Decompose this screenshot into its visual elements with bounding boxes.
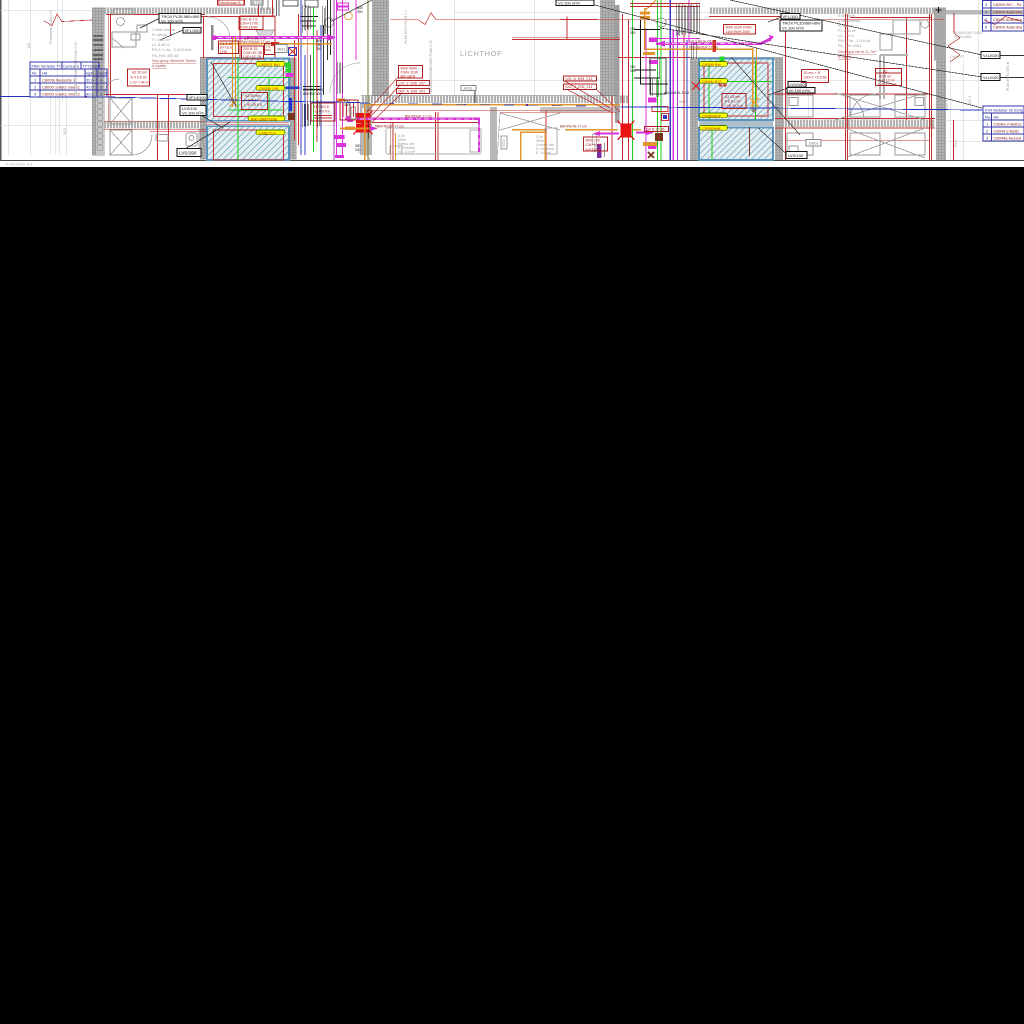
svg-text:LHK: LHK <box>220 50 228 54</box>
svg-text:A 4 9.5 m²: A 4 9.5 m² <box>131 76 148 80</box>
svg-text:C80Aa 2-Bettze: C80Aa 2-Bettze <box>994 122 1023 127</box>
svg-text:VLU/100: VLU/100 <box>983 53 999 58</box>
svg-text:UW75: UW75 <box>677 99 689 104</box>
svg-text:+L5 4-0-9 m: +L5 4-0-9 m <box>313 110 331 114</box>
svg-text:C80DB#WL: C80DB#WL <box>702 127 721 131</box>
svg-text:43.5: 43.5 <box>63 128 67 135</box>
svg-text:C80DB R#r: C80DB R#r <box>702 63 722 67</box>
svg-text:Vn 100 m³/h: Vn 100 m³/h <box>782 26 804 31</box>
svg-text:L+B 7B 9.5: L+B 7B 9.5 <box>244 103 262 107</box>
svg-text:A2 15 em: A2 15 em <box>725 95 740 99</box>
svg-text:L+B 42.5 m: L+B 42.5 m <box>878 82 896 86</box>
svg-text:E- 9.0 m²: E- 9.0 m² <box>536 151 552 155</box>
svg-text:300: 300 <box>316 47 322 51</box>
svg-text:VFL/100: VFL/100 <box>185 28 201 33</box>
svg-text:K:\Plan\0001_EG: K:\Plan\0001_EG <box>6 163 33 167</box>
svg-text:Sep.group.Beletzte Steller: Sep.group.Beletzte Steller <box>152 59 197 63</box>
svg-text:PA_Ref: 4953: PA_Ref: 4953 <box>838 44 861 48</box>
svg-text:F00+1E0B: F00+1E0B <box>241 26 259 30</box>
svg-text:B00÷B0 300: B00÷B0 300 <box>303 92 321 96</box>
svg-text:C80DB#H2: C80DB#H2 <box>702 115 721 119</box>
svg-text:Vn 100 m³/h: Vn 100 m³/h <box>558 0 580 5</box>
svg-text:PA_Ref: 300.48: PA_Ref: 300.48 <box>152 54 179 58</box>
svg-text:B3 T16/2 B: B3 T16/2 B <box>313 105 329 109</box>
svg-text:RH: 3.4a - 1.0/0.4a: RH: 3.4a - 1.0/0.4a <box>838 39 871 43</box>
svg-text:C80K0 Aufentha: C80K0 Aufentha <box>993 25 1023 30</box>
svg-text:G80J: G80J <box>809 141 819 146</box>
svg-text:F04 Verteiler 00 Erdg: F04 Verteiler 00 Erdg <box>985 108 1023 113</box>
svg-text:R: tatsch: R: tatsch <box>152 33 167 37</box>
svg-text:A06L: A06L <box>464 86 474 91</box>
svg-text:C8000 Aufentha: C8000 Aufentha <box>993 17 1022 22</box>
svg-text:+VL/UW-0L-05-TT: +VL/UW-0L-05-TT <box>689 40 717 44</box>
svg-text:RH 1+1.4a - 3-2H2.04a: RH 1+1.4a - 3-2H2.04a <box>152 48 192 52</box>
svg-text:Ventil: Ventil <box>98 71 108 76</box>
svg-text:HK: HK <box>994 115 1000 120</box>
svg-text:U= 8.98 m: U= 8.98 m <box>152 43 170 47</box>
svg-text:#BM+RDUK +7 cm: #BM+RDUK +7 cm <box>375 125 404 129</box>
svg-text:WCM: WCM <box>502 139 506 147</box>
svg-text:A 8.6 L m²: A 8.6 L m² <box>725 100 742 104</box>
svg-text:UMGEBUNGSMESSER PLAN 0 50: UMGEBUNGSMESSER PLAN 0 50 <box>429 40 433 94</box>
svg-text:P#0+P00UK 1T em: P#0+P00UK 1T em <box>241 40 270 44</box>
svg-text:W11: W11 <box>278 47 287 52</box>
svg-text:A2 45 em: A2 45 em <box>245 94 260 98</box>
svg-text:42.0: 42.0 <box>86 85 95 90</box>
svg-text:#VL/UW-0L-E-02: #VL/UW-0L-E-02 <box>664 91 689 95</box>
svg-text:230.3: 230.3 <box>945 100 949 109</box>
svg-text:D0 B 20 96: D0 B 20 96 <box>647 128 665 132</box>
svg-text:002_A_E06_201: 002_A_E06_201 <box>399 90 426 94</box>
svg-text:C800DT B#1: C800DT B#1 <box>259 63 280 67</box>
svg-text:L00_A_E06_213: L00_A_E06_213 <box>566 77 593 81</box>
svg-text:1-Bett zimmer: 1-Bett zimmer <box>152 28 176 32</box>
svg-text:L+D 7.44 m: L+D 7.44 m <box>130 81 149 85</box>
svg-text:BM+RDUK 17 cm: BM+RDUK 17 cm <box>405 115 432 119</box>
svg-text:B26: B26 <box>266 48 272 52</box>
svg-text:0.0e 000e: 0.0e 000e <box>838 14 855 18</box>
svg-text:42.6: 42.6 <box>86 92 95 97</box>
svg-text:F9.3: F9.3 <box>954 140 958 147</box>
svg-text:PLAN ENTLNGS B: PLAN ENTLNGS B <box>1006 61 1010 91</box>
svg-text:B00 C80DT10B: B00 C80DT10B <box>251 118 277 122</box>
svg-text:Vn 100 m³/h: Vn 100 m³/h <box>161 18 183 23</box>
svg-text:VFL/100: VFL/100 <box>783 14 799 19</box>
svg-text:A2: A2 <box>883 69 887 73</box>
svg-text:TTT3 kg/h: TTT3 kg/h <box>82 64 100 69</box>
svg-text:C80K0 Aufentha: C80K0 Aufentha <box>993 10 1023 15</box>
svg-text:20 em +-R: 20 em +-R <box>804 71 821 75</box>
svg-text:2-Bettzimmer: 2-Bettzimmer <box>838 19 861 23</box>
svg-text:A.bprtte: A.bprtte <box>838 55 851 59</box>
svg-text:Gemeinsam B: Gemeinsam B <box>219 1 241 5</box>
svg-text:PLAN 4000: PLAN 4000 <box>954 35 971 39</box>
svg-text:B/T100: B/T100 <box>252 1 263 5</box>
svg-text:CA AT ST: CA AT ST <box>950 55 965 59</box>
svg-text:1100 B0H 2000: 1100 B0H 2000 <box>726 30 751 34</box>
svg-text:C8044a Nessut: C8044a Nessut <box>994 136 1022 141</box>
svg-text:F= 8.50 m²: F= 8.50 m² <box>152 38 171 42</box>
svg-text:L00_2_E06_207: L00_2_E06_207 <box>399 82 425 86</box>
svg-text:200: 200 <box>355 148 361 152</box>
svg-text:300: 300 <box>630 69 636 73</box>
svg-text:Prestebttte PLAN 0.05: Prestebttte PLAN 0.05 <box>49 10 53 44</box>
svg-text:F= 2.41 m²: F= 2.41 m² <box>838 29 857 33</box>
svg-text:Vn 100 m³/h: Vn 100 m³/h <box>182 111 204 116</box>
svg-text:HK: HK <box>42 71 48 76</box>
svg-text:Gen.t.grp.2te.te.3-.7m²: Gen.t.grp.2te.te.3-.7m² <box>838 50 877 54</box>
svg-text:W13: W13 <box>594 145 598 152</box>
svg-text:FBH Verteiler TT: FBH Verteiler TT <box>32 64 62 69</box>
svg-text:300: 300 <box>357 10 363 14</box>
svg-text:W00 3100 CWH: W00 3100 CWH <box>726 26 752 30</box>
svg-text:LVS/100: LVS/100 <box>788 153 804 158</box>
svg-text:A.bprttte: A.bprttte <box>152 64 166 68</box>
svg-text:C80K0 B/C - Pe: C80K0 B/C - Pe <box>993 2 1022 7</box>
svg-text:BM+PB 46-17 cm: BM+PB 46-17 cm <box>560 125 587 129</box>
svg-text:kg/h: kg/h <box>86 71 94 76</box>
svg-text:W00 100: W00 100 <box>586 139 600 143</box>
svg-text:PLAN ENTL PLAN 0.0: PLAN ENTL PLAN 0.0 <box>404 10 408 44</box>
svg-text:B0+1878: B0+1878 <box>401 75 416 79</box>
svg-text:L0E+1E 7B: L0E+1E 7B <box>243 55 262 59</box>
svg-text:C80DB 10B: C80DB 10B <box>259 87 279 91</box>
svg-text:32.0: 32.0 <box>86 78 95 83</box>
svg-text:TW13: TW13 <box>347 104 351 113</box>
svg-text:136: 136 <box>27 43 31 49</box>
svg-text:00 - 0.0 m²: 00 - 0.0 m² <box>398 150 416 154</box>
svg-text:UMGEBUNGSMESSER PLAN 0 50: UMGEBUNGSMESSER PLAN 0 50 <box>74 42 78 96</box>
svg-text:L+B 42.5 m: L+B 42.5 m <box>725 104 743 108</box>
svg-text:LVS/190: LVS/190 <box>179 151 197 156</box>
svg-text:230.3: 230.3 <box>968 96 972 105</box>
svg-text:120×7 ×0.5 6b: 120×7 ×0.5 6b <box>804 76 827 80</box>
svg-text:A-R 5.7 m²: A-R 5.7 m² <box>244 99 262 103</box>
svg-text:LICHTHOF: LICHTHOF <box>460 49 502 58</box>
svg-text:VFL4/100: VFL4/100 <box>189 95 207 100</box>
svg-text:A2 20 em: A2 20 em <box>132 71 147 75</box>
svg-text:VLU/100: VLU/100 <box>983 75 999 80</box>
svg-text:Nr.: Nr. <box>32 71 37 76</box>
svg-text:C0DL/C-D: C0DL/C-D <box>259 132 276 136</box>
svg-text:C8044 2-Bettz: C8044 2-Bettz <box>994 129 1020 134</box>
svg-text:R: tatsch: R: tatsch <box>838 24 853 28</box>
svg-text:C800fa Nessutte 1: C800fa Nessutte 1 <box>42 78 76 83</box>
svg-text:U= 2.9 m: U= 2.9 m <box>838 34 854 38</box>
svg-text:C80(A)-B12: C80(A)-B12 <box>702 80 721 84</box>
svg-text:300: 300 <box>630 31 636 35</box>
svg-text:No.: No. <box>985 115 991 120</box>
svg-text:D02_4_E06_214: D02_4_E06_214 <box>566 85 593 89</box>
svg-text:Vn 100 m³/h: Vn 100 m³/h <box>789 88 811 93</box>
